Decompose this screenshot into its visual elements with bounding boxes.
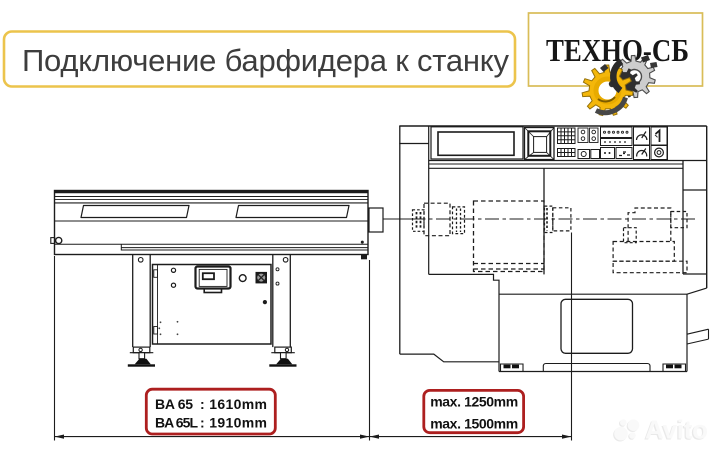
svg-text:Avito: Avito	[645, 415, 708, 445]
svg-text:max. 1500mm: max. 1500mm	[430, 416, 518, 432]
svg-text:BA 65: 1610mm: BA 65: 1610mm	[155, 396, 267, 412]
svg-text:max. 1250mm: max. 1250mm	[430, 394, 518, 410]
svg-text:Подключение барфидера к станку: Подключение барфидера к станку	[22, 43, 510, 78]
svg-text:BA 65L: 1910mm: BA 65L: 1910mm	[155, 415, 267, 431]
